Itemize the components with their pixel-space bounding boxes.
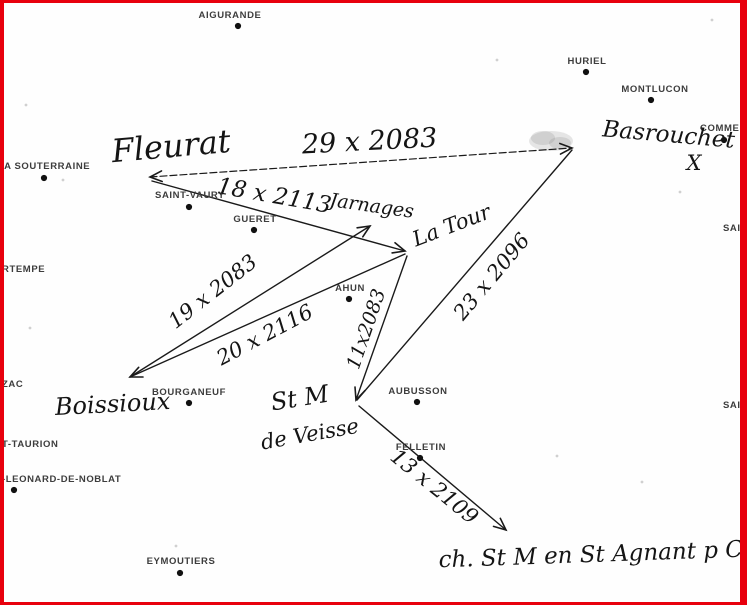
town-dot bbox=[346, 296, 352, 302]
town-label: -LEONARD-DE-NOBLAT bbox=[4, 474, 121, 485]
town-dot bbox=[251, 227, 257, 233]
handwritten-label: Basrouchet bbox=[600, 116, 736, 154]
survey-line-stm-basrouchet bbox=[357, 150, 572, 400]
town-label: AUBUSSON bbox=[388, 386, 447, 397]
town-dot bbox=[186, 400, 192, 406]
scan-noise-speck bbox=[62, 179, 65, 182]
town-label: AIGURANDE bbox=[199, 10, 262, 21]
scan-noise-speck bbox=[29, 327, 32, 330]
handwritten-label: 29 x 2083 bbox=[300, 122, 438, 160]
town-label: AHUN bbox=[335, 283, 365, 294]
town-dot bbox=[41, 175, 47, 181]
scan-noise-speck bbox=[496, 59, 499, 62]
town-label: GUERET bbox=[233, 214, 276, 225]
town-label: LA SOUTERRAINE bbox=[4, 161, 90, 172]
town-label: MONTLUCON bbox=[621, 84, 688, 95]
handwritten-label: Fleurat bbox=[109, 122, 232, 170]
handwritten-label: 20 x 2116 bbox=[212, 299, 317, 370]
handwritten-label: X bbox=[685, 151, 703, 175]
handwritten-label: 19 x 2083 bbox=[164, 250, 262, 334]
town-label: ZAC bbox=[4, 379, 23, 390]
handwritten-label: ch. St M en St Agnant p C bbox=[438, 537, 740, 574]
town-dot bbox=[414, 399, 420, 405]
scanned-map-page: AIGURANDEHURIELMONTLUCONCOMMENTLA SOUTER… bbox=[0, 0, 747, 605]
survey-line-stm-stagnant bbox=[359, 406, 506, 530]
scan-noise-speck bbox=[175, 545, 178, 548]
handwritten-label: Boissioux bbox=[53, 387, 171, 421]
scan-noise-speck bbox=[641, 481, 644, 484]
town-dot bbox=[583, 69, 589, 75]
scan-noise-speck bbox=[25, 104, 28, 107]
town-label: HURIEL bbox=[568, 56, 607, 67]
scan-noise-speck bbox=[679, 191, 682, 194]
handwritten-label: La Tour bbox=[408, 199, 496, 252]
town-dot bbox=[235, 23, 241, 29]
handwritten-label: Jarnages bbox=[324, 189, 415, 223]
town-label: RTEMPE bbox=[4, 264, 45, 275]
town-label: SAINT-VAURY bbox=[155, 190, 225, 201]
handwritten-label: St M bbox=[269, 379, 332, 416]
scan-noise-speck bbox=[711, 19, 714, 22]
town-dot bbox=[11, 487, 17, 493]
map-canvas: AIGURANDEHURIELMONTLUCONCOMMENTLA SOUTER… bbox=[4, 3, 740, 602]
handwritten-label: de Veisse bbox=[259, 414, 361, 455]
handwritten-label: 18 x 2113 bbox=[215, 173, 333, 219]
arrowhead bbox=[357, 226, 370, 237]
town-label: T-TAURION bbox=[4, 439, 58, 450]
handwritten-label: 13 x 2109 bbox=[386, 444, 483, 529]
town-label: SAIN bbox=[723, 223, 740, 234]
town-dot bbox=[648, 97, 654, 103]
town-label: SAIN bbox=[723, 400, 740, 411]
town-dot bbox=[177, 570, 183, 576]
town-dot bbox=[186, 204, 192, 210]
scan-noise-speck bbox=[556, 455, 559, 458]
town-label: EYMOUTIERS bbox=[147, 556, 216, 567]
